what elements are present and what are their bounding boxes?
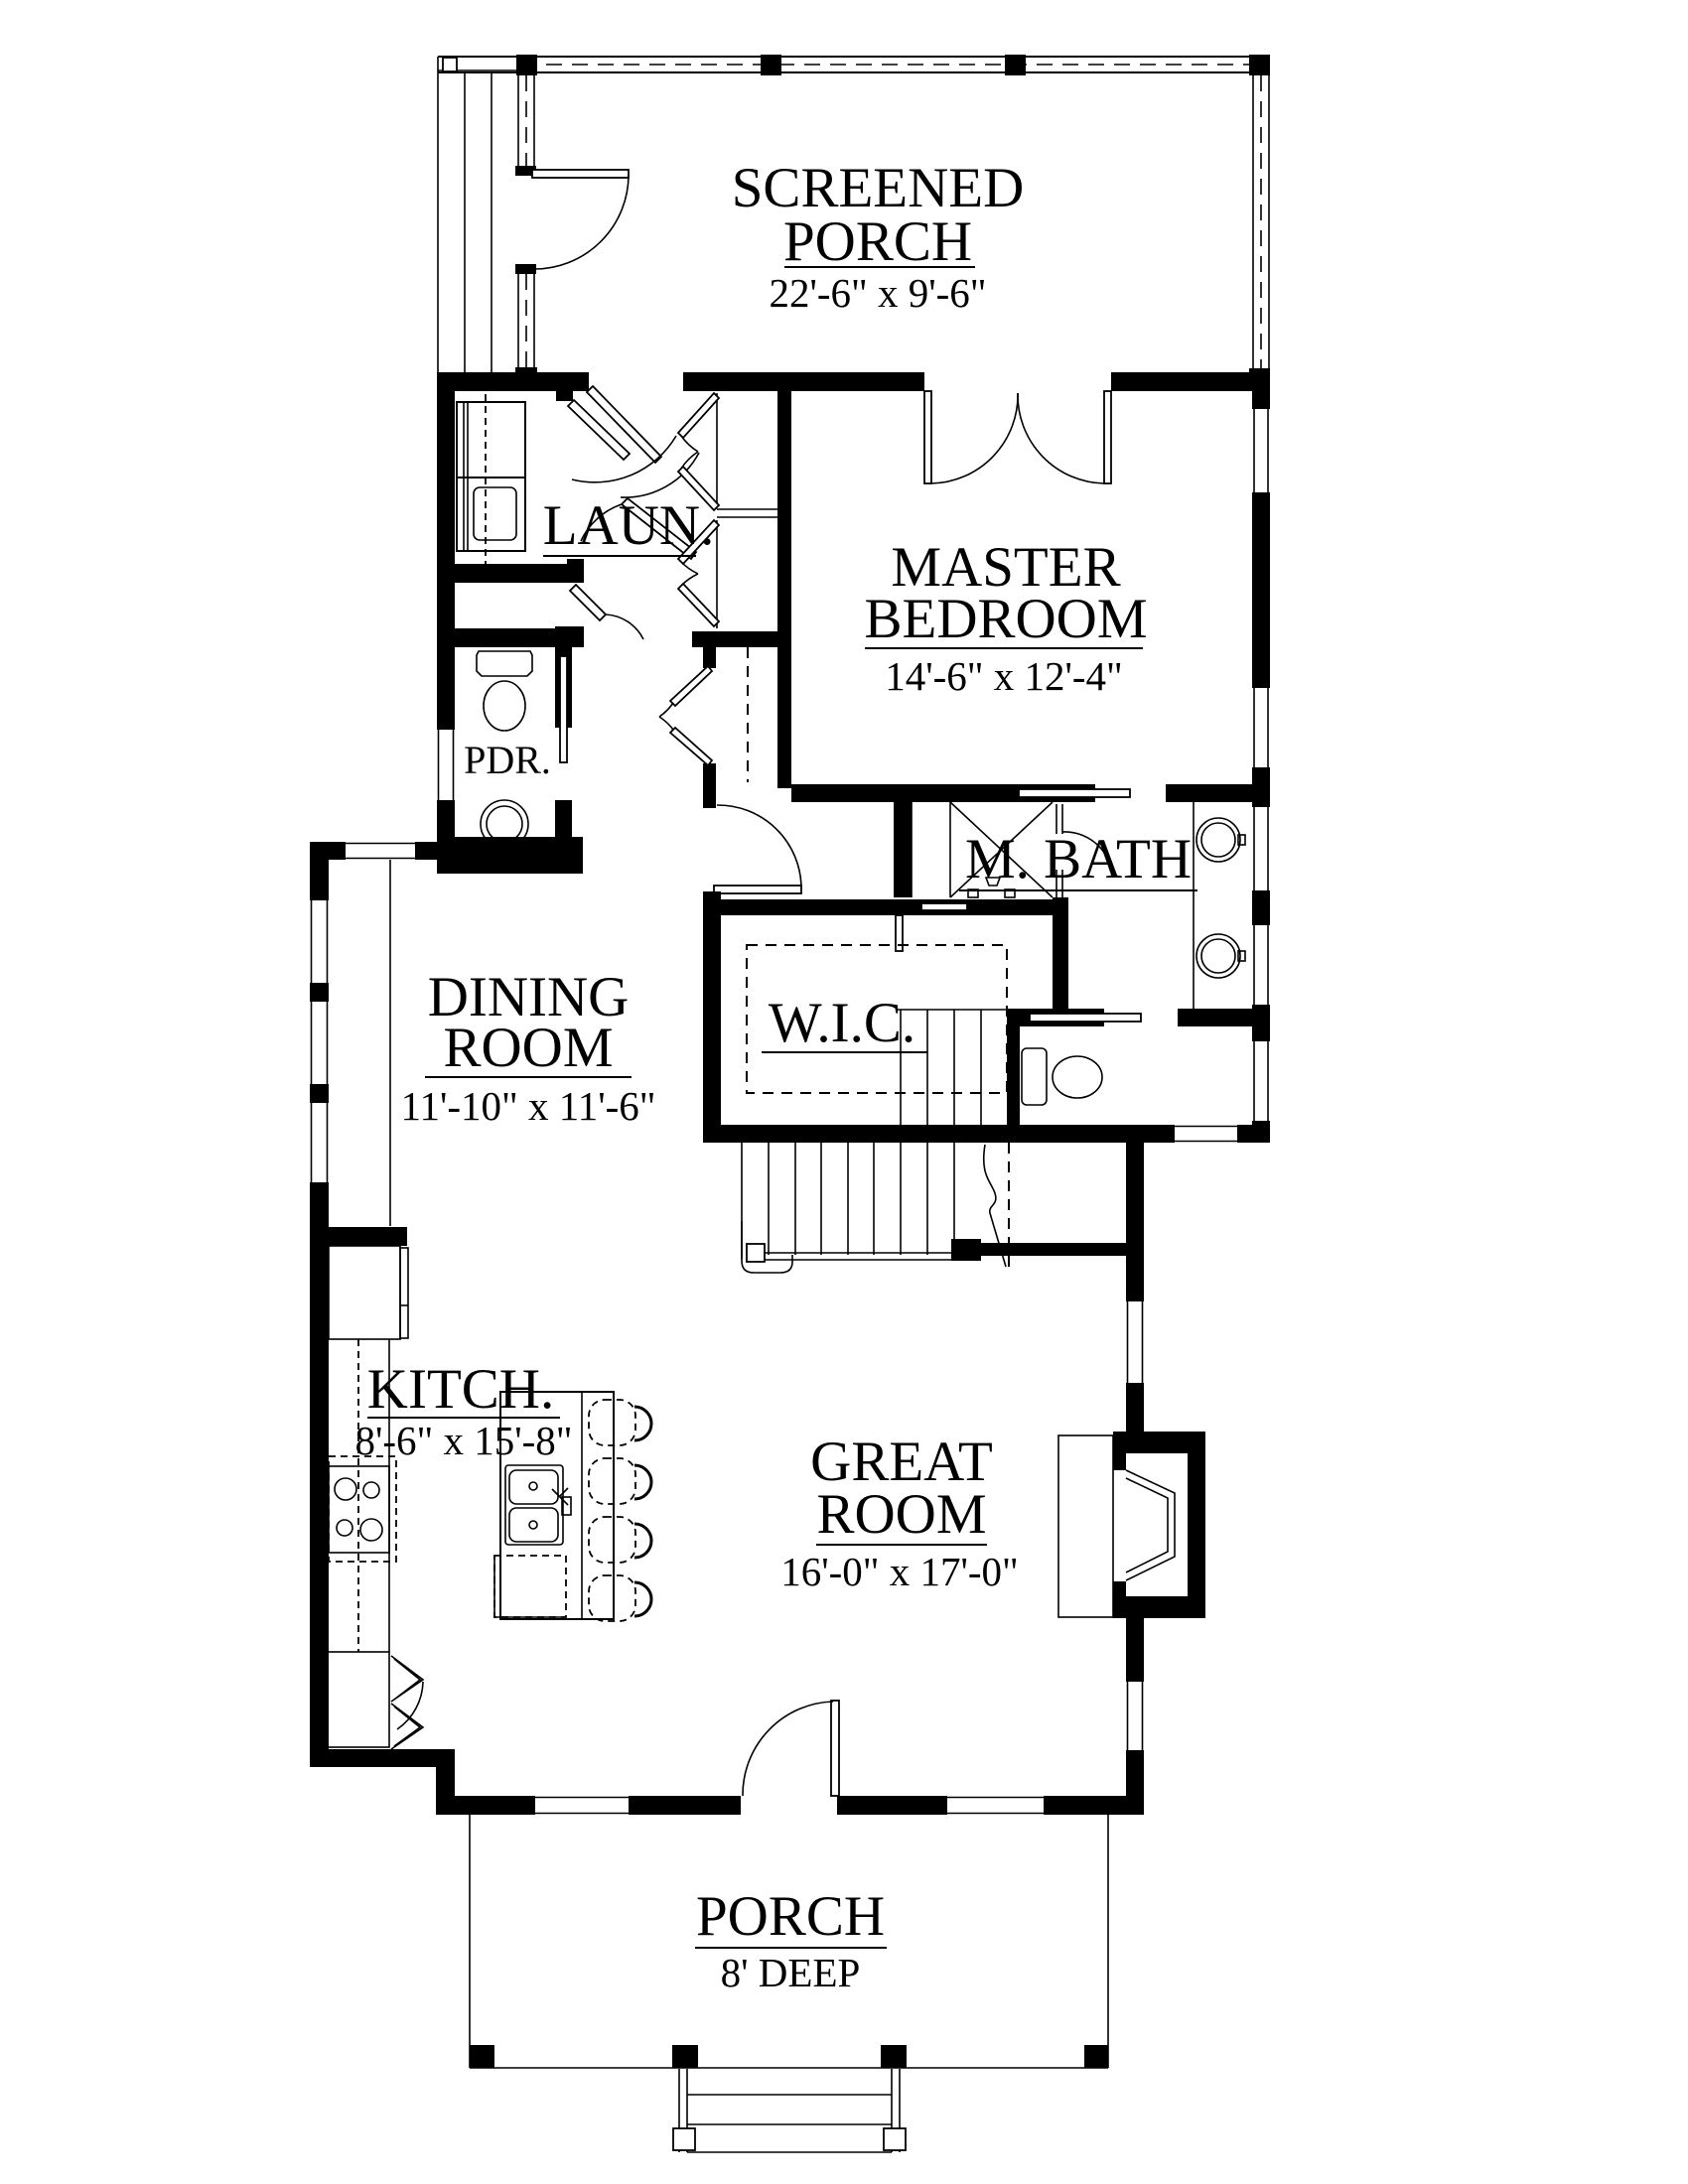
svg-text:W.I.C.: W.I.C. xyxy=(769,992,915,1054)
svg-text:8' DEEP: 8' DEEP xyxy=(721,1950,861,1995)
svg-text:PORCH: PORCH xyxy=(696,1885,885,1948)
svg-text:PORCH: PORCH xyxy=(783,210,972,273)
svg-text:LAUN.: LAUN. xyxy=(543,494,715,557)
svg-text:BEDROOM: BEDROOM xyxy=(864,588,1147,650)
svg-text:PDR.: PDR. xyxy=(464,738,551,782)
svg-text:ROOM: ROOM xyxy=(443,1017,613,1079)
svg-text:14'-6" x 12'-4": 14'-6" x 12'-4" xyxy=(885,653,1123,699)
svg-text:11'-10" x 11'-6": 11'-10" x 11'-6" xyxy=(400,1083,655,1129)
svg-text:KITCH.: KITCH. xyxy=(367,1358,554,1421)
svg-text:16'-0" x 17'-0": 16'-0" x 17'-0" xyxy=(780,1549,1019,1594)
svg-text:ROOM: ROOM xyxy=(816,1483,986,1546)
svg-text:8'-6" x 15'-8": 8'-6" x 15'-8" xyxy=(354,1418,572,1463)
svg-text:M. BATH: M. BATH xyxy=(965,828,1192,890)
svg-text:22'-6" x 9'-6": 22'-6" x 9'-6" xyxy=(769,270,986,316)
